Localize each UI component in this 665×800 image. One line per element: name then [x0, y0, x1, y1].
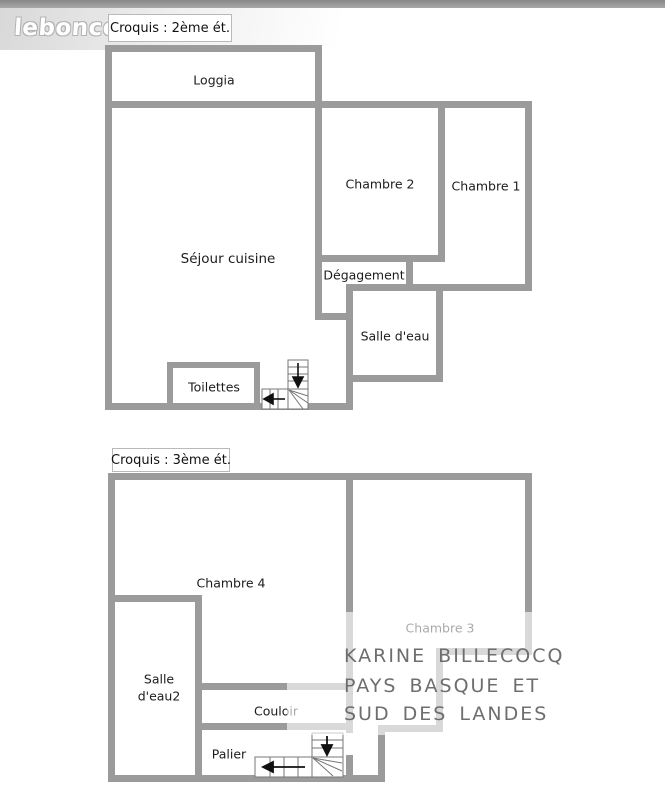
- wall: [195, 595, 202, 782]
- top-gray-bar: [0, 0, 665, 8]
- wall: [346, 284, 353, 410]
- room-label-loggia: Loggia: [193, 73, 234, 88]
- staircase-icon: [253, 731, 345, 779]
- room-label-salle-eau: Salle d'eau: [361, 329, 430, 344]
- watermark-agency-line2: PAYS BASQUE ET: [344, 675, 540, 697]
- floor3-caption: Croquis : 3ème ét.: [112, 448, 230, 472]
- watermark-agency-line3: SUD DES LANDES: [344, 703, 548, 725]
- wall: [436, 284, 443, 382]
- floorplan-photo: leboncoin Croquis : 2ème ét. Loggia Séjo…: [0, 0, 665, 800]
- wall: [525, 101, 532, 290]
- staircase-icon: [260, 358, 310, 410]
- wall: [167, 362, 260, 368]
- wall: [315, 255, 445, 262]
- room-label-salle-eau2-line1: Salle: [144, 672, 174, 687]
- wall: [108, 473, 115, 782]
- wall: [108, 473, 532, 480]
- room-label-toilettes: Toilettes: [188, 380, 240, 395]
- room-label-chambre2: Chambre 2: [346, 177, 415, 192]
- watermark-agency-line1: KARINE BILLECOCQ: [344, 645, 564, 667]
- room-label-degagement: Dégagement: [323, 268, 404, 283]
- wall: [105, 403, 353, 410]
- room-label-chambre4: Chambre 4: [197, 576, 266, 591]
- room-label-salle-eau2-line2: d'eau2: [138, 689, 181, 704]
- room-label-chambre1: Chambre 1: [452, 179, 521, 194]
- wall: [346, 375, 443, 382]
- floor2-caption: Croquis : 2ème ét.: [108, 14, 232, 42]
- room-label-palier: Palier: [212, 747, 246, 762]
- wall: [315, 45, 322, 108]
- wall: [167, 362, 173, 403]
- wall: [105, 45, 112, 410]
- wall: [438, 101, 445, 262]
- room-label-sejour-cuisine: Séjour cuisine: [181, 251, 276, 267]
- wall: [315, 101, 322, 320]
- wall: [108, 595, 202, 602]
- wall: [105, 45, 322, 52]
